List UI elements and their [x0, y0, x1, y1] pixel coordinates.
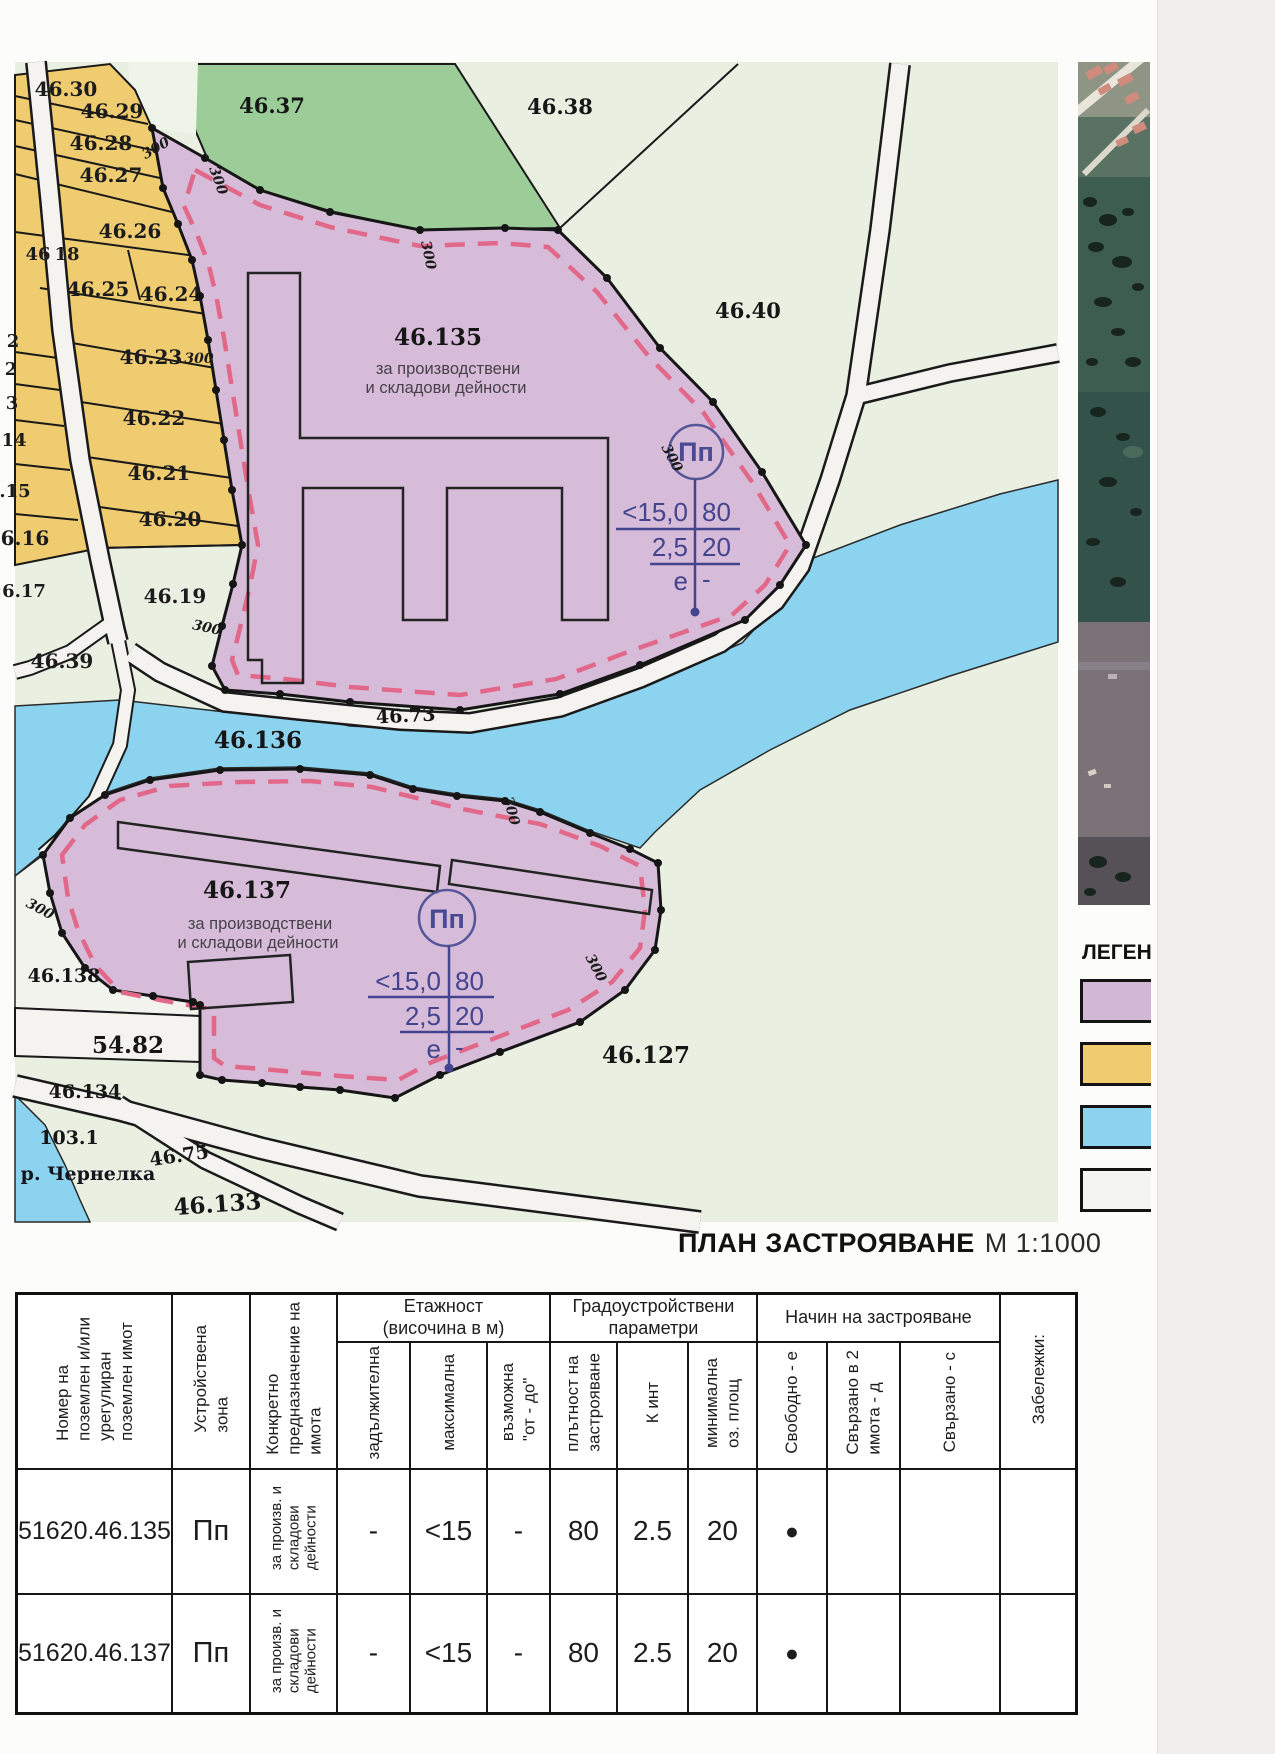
boundary-point — [346, 698, 354, 706]
boundary-point — [586, 829, 594, 837]
boundary-point — [174, 220, 182, 228]
cell-purpose: за произв. и складови дейности — [250, 1594, 337, 1714]
boundary-point — [656, 344, 664, 352]
boundary-point — [296, 765, 304, 773]
map-label: 2 — [5, 359, 18, 380]
param-mode: е — [427, 1034, 441, 1064]
boundary-point — [196, 292, 204, 300]
cell-kint: 2.5 — [617, 1469, 688, 1594]
boundary-point — [501, 224, 509, 232]
map-label: 46.127 — [602, 1042, 690, 1069]
header-notes: Забележки: — [1000, 1294, 1077, 1469]
header-attached: Свързано - с — [900, 1342, 1000, 1469]
cell-notes — [1000, 1594, 1077, 1714]
cell-purpose: за произв. и складови дейности — [250, 1469, 337, 1594]
plan-title-text: ПЛАН ЗАСТРОЯВАНЕ — [678, 1228, 975, 1258]
cell-mandatory: - — [337, 1594, 410, 1714]
boundary-point — [58, 929, 66, 937]
param-mode: е — [674, 566, 688, 596]
boundary-point — [456, 706, 464, 714]
map-label: 14 — [1, 430, 26, 451]
boundary-point — [758, 468, 766, 476]
boundary-point — [229, 580, 237, 588]
map-label: 300 — [184, 351, 213, 367]
map-label: 46.20 — [139, 507, 202, 531]
zone-symbol-point — [445, 1064, 454, 1073]
boundary-point — [636, 661, 644, 669]
legend: ЛЕГЕНДА — [1080, 941, 1151, 1231]
boundary-point — [576, 1018, 584, 1026]
boundary-point — [148, 124, 156, 132]
boundary-point — [651, 946, 659, 954]
boundary-point — [221, 686, 229, 694]
param-green: 20 — [702, 532, 731, 562]
boundary-point — [554, 226, 562, 234]
map-label: 46.30 — [35, 77, 98, 101]
map-label: 18 — [54, 244, 79, 265]
cell-density: 80 — [550, 1594, 617, 1714]
boundary-point — [66, 814, 74, 822]
boundary-point — [196, 1071, 204, 1079]
map-label: 46.137 — [203, 877, 291, 904]
cell-green: 20 — [688, 1594, 757, 1714]
cell-density: 80 — [550, 1469, 617, 1594]
boundary-point — [453, 792, 461, 800]
boundary-point — [621, 986, 629, 994]
header-density: плътност на застрояване — [550, 1342, 617, 1469]
header-group-urban-params: Градоустройствени параметри — [550, 1294, 757, 1342]
parameters-table: Номер на поземлен и/или урегулиран позем… — [15, 1292, 1078, 1715]
map-label: 46.136 — [214, 727, 302, 754]
cell-zone: Пп — [172, 1594, 250, 1714]
map-label: 46.28 — [70, 131, 133, 155]
boundary-point — [296, 1083, 304, 1091]
cell-attached2 — [827, 1594, 900, 1714]
boundary-point — [536, 808, 544, 816]
cell-free-mode: ● — [757, 1594, 827, 1714]
header-group-floors: Етажност (височина в м) — [337, 1294, 550, 1342]
legend-swatches — [1080, 979, 1151, 1212]
legend-swatch-road-zone — [1080, 1168, 1151, 1212]
boundary-point — [276, 690, 284, 698]
map-label: 103.1 — [39, 1127, 99, 1149]
map-label: 46.40 — [715, 298, 781, 323]
boundary-point — [196, 1001, 204, 1009]
legend-swatch-farmland-zone — [1080, 1042, 1151, 1086]
header-attached2: Свързано в 2 имота - д — [827, 1342, 900, 1469]
header-kint: К инт — [617, 1342, 688, 1469]
cell-attached — [900, 1469, 1000, 1594]
cell-parcel-id: 51620.46.137 — [17, 1594, 172, 1714]
plan-title-scale: М 1:1000 — [985, 1228, 1102, 1258]
boundary-point — [776, 581, 784, 589]
boundary-point — [409, 785, 417, 793]
boundary-point — [146, 776, 154, 784]
map-label: 46.19 — [144, 584, 207, 608]
scanned-development-plan-page: { "title": { "bold": "ПЛАН ЗАСТРОЯВАНЕ",… — [0, 0, 1275, 1754]
boundary-point — [416, 226, 424, 234]
aerial-photo-strip — [1074, 56, 1150, 905]
boundary-point — [201, 154, 209, 162]
boundary-point — [101, 791, 109, 799]
map-label: 46.39 — [31, 649, 94, 673]
zone-symbol-text: Пп — [429, 904, 465, 934]
map-label: 46.73 — [375, 703, 436, 728]
boundary-point — [556, 690, 564, 698]
map-label: 46.134 — [49, 1081, 122, 1103]
header-possible: възможна "от - до" — [487, 1342, 550, 1469]
cell-attached — [900, 1594, 1000, 1714]
boundary-point — [159, 184, 167, 192]
cell-max: <15 — [410, 1469, 487, 1594]
cell-kint: 2.5 — [617, 1594, 688, 1714]
boundary-point — [366, 771, 374, 779]
cell-notes — [1000, 1469, 1077, 1594]
boundary-point — [496, 1048, 504, 1056]
header-free: Свободно - е — [757, 1342, 827, 1469]
boundary-point — [208, 662, 216, 670]
map-label: 46.29 — [81, 99, 144, 123]
legend-swatch-water-zone — [1080, 1105, 1151, 1149]
boundary-point — [204, 336, 212, 344]
param-kint: 2,5 — [405, 1001, 441, 1031]
boundary-point — [189, 998, 197, 1006]
boundary-point — [218, 1076, 226, 1084]
map-label: 46.37 — [239, 93, 305, 118]
map-label: 46.25 — [67, 277, 130, 301]
map-label: 54.82 — [92, 1032, 164, 1059]
header-mandatory: задължителна — [337, 1342, 410, 1469]
param-density: 80 — [455, 966, 484, 996]
map-label: 46.21 — [128, 461, 191, 485]
cell-parcel-id: 51620.46.135 — [17, 1469, 172, 1594]
boundary-point — [258, 1079, 266, 1087]
boundary-point — [654, 859, 662, 867]
map-label: р. Чернелка — [21, 1163, 156, 1185]
map-label: 46.23 — [120, 345, 183, 369]
table-row: 51620.46.135 Пп за произв. и складови де… — [17, 1469, 1077, 1594]
boundary-point — [436, 1071, 444, 1079]
boundary-point — [603, 274, 611, 282]
boundary-point — [256, 186, 264, 194]
header-purpose: Конкретно предназначение на имота — [250, 1294, 337, 1469]
param-green: 20 — [455, 1001, 484, 1031]
zone-symbol-point — [691, 608, 700, 617]
map-label: 46.26 — [99, 219, 162, 243]
map-label: 46.22 — [123, 406, 186, 430]
map-label: 46 — [25, 244, 50, 265]
header-green: минимална оз. площ — [688, 1342, 757, 1469]
boundary-point — [709, 398, 717, 406]
map-label: 46.138 — [28, 965, 101, 987]
legend-title: ЛЕГЕНДА — [1082, 941, 1151, 965]
boundary-point — [501, 797, 509, 805]
boundary-point — [212, 386, 220, 394]
boundary-point — [228, 486, 236, 494]
map-label: и складови дейности — [366, 379, 527, 397]
table-row: 51620.46.137 Пп за произв. и складови де… — [17, 1594, 1077, 1714]
boundary-point — [81, 964, 89, 972]
boundary-point — [220, 436, 228, 444]
map-label: .15 — [0, 481, 31, 502]
boundary-point — [238, 541, 246, 549]
param-max-height: <15,0 — [375, 966, 441, 996]
legend-swatch-production-storage-zone — [1080, 979, 1151, 1023]
cell-max: <15 — [410, 1594, 487, 1714]
cell-possible: - — [487, 1469, 550, 1594]
boundary-point — [326, 208, 334, 216]
header-zone: Устройствена зона — [172, 1294, 250, 1469]
map-label: 2 — [7, 331, 20, 352]
map-label: 6.17 — [2, 581, 46, 602]
boundary-point — [216, 766, 224, 774]
map-label: 6.16 — [1, 526, 50, 550]
boundary-point — [741, 616, 749, 624]
map-label: 3 — [6, 393, 19, 414]
param-max-height: <15,0 — [622, 497, 688, 527]
cell-green: 20 — [688, 1469, 757, 1594]
map-label: за производствени — [188, 915, 332, 933]
boundary-point — [336, 1086, 344, 1094]
param-dash: - — [702, 564, 711, 594]
header-parcel-number: Номер на поземлен и/или урегулиран позем… — [17, 1294, 172, 1469]
param-dash: - — [455, 1032, 464, 1062]
map-label: за производствени — [376, 360, 520, 378]
cell-mandatory: - — [337, 1469, 410, 1594]
header-group-build-mode: Начин на застрояване — [757, 1294, 1000, 1342]
boundary-point — [657, 906, 665, 914]
map-label: 46.27 — [80, 163, 143, 187]
boundary-point — [188, 256, 196, 264]
header-max: максимална — [410, 1342, 487, 1469]
boundary-point — [149, 992, 157, 1000]
boundary-point — [391, 1094, 399, 1102]
boundary-point — [802, 541, 810, 549]
boundary-point — [626, 845, 634, 853]
cell-attached2 — [827, 1469, 900, 1594]
param-density: 80 — [702, 497, 731, 527]
plan-title: ПЛАН ЗАСТРОЯВАНЕМ 1:1000 — [678, 1228, 1101, 1259]
map-label: и складови дейности — [178, 934, 339, 952]
boundary-point — [109, 986, 117, 994]
param-kint: 2,5 — [652, 532, 688, 562]
map-label: 46.38 — [527, 94, 593, 119]
map-label: 46.24 — [140, 282, 203, 306]
map-label: 46.135 — [394, 324, 482, 351]
boundary-point — [39, 851, 47, 859]
cell-zone: Пп — [172, 1469, 250, 1594]
boundary-point — [46, 889, 54, 897]
cell-possible: - — [487, 1594, 550, 1714]
boundary-point — [218, 622, 226, 630]
cell-free-mode: ● — [757, 1469, 827, 1594]
